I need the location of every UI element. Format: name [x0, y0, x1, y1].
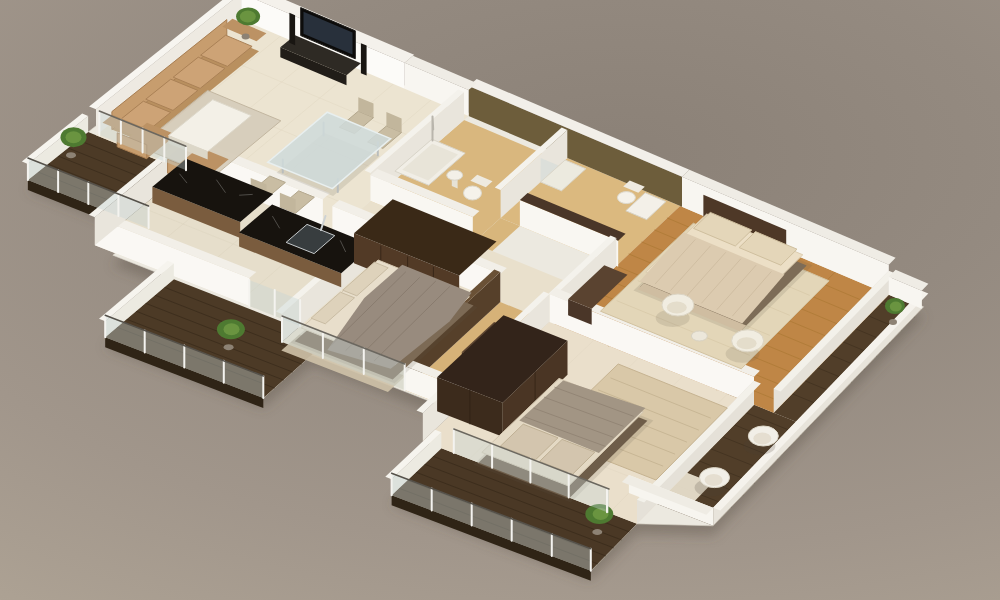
terrace-chair-seat	[705, 474, 723, 486]
master-chair-seat	[667, 301, 687, 313]
toilet	[464, 186, 482, 200]
terrace-chair-seat	[753, 432, 771, 444]
center-balcony-plant-highlight	[224, 323, 240, 335]
master-side-table	[691, 331, 707, 341]
render-layers	[22, 0, 929, 581]
balcony-plant-pot	[592, 529, 602, 535]
bathroom-sink	[447, 170, 463, 180]
terrace-plant-pot	[889, 319, 897, 325]
left-balcony-plant-highlight	[66, 131, 82, 143]
terrace-plant-highlight	[890, 302, 902, 312]
living-plant-highlight	[240, 10, 256, 22]
balcony-plant-pot	[66, 152, 76, 158]
floor-plan-stage	[0, 0, 1000, 600]
ensuite-toilet	[617, 192, 635, 204]
balcony-plant-pot	[224, 344, 234, 350]
speaker	[361, 43, 367, 75]
plant-pot	[242, 33, 250, 39]
speaker	[289, 13, 295, 45]
shower-head	[433, 116, 434, 140]
floor-plan-3d-render	[0, 0, 1000, 600]
master-chair-seat	[737, 337, 757, 349]
